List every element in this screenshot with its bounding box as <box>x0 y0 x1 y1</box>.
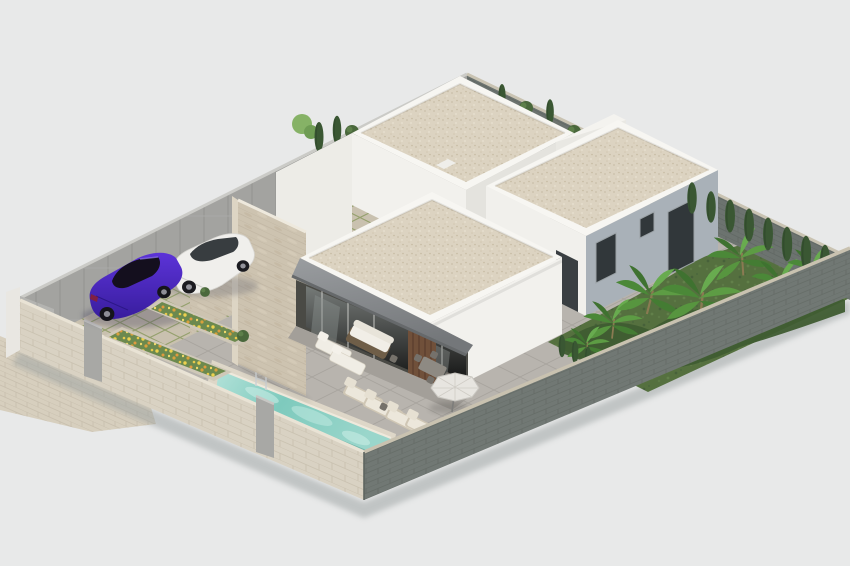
wall-pillar <box>256 396 274 458</box>
cypress-tree <box>706 191 715 223</box>
cypress-tree <box>744 209 754 242</box>
cypress-tree <box>763 218 773 251</box>
suv-rim <box>186 284 192 290</box>
garden-bush <box>200 287 210 297</box>
wall-pillar <box>84 320 102 382</box>
garden-bush <box>237 330 249 342</box>
cypress-tree <box>572 341 579 364</box>
cypress-tree <box>559 335 566 358</box>
suv-rim <box>240 264 245 269</box>
sedan-rim <box>104 311 110 317</box>
sedan-rim <box>161 289 167 294</box>
cypress-tree <box>315 122 324 152</box>
cypress-tree <box>725 200 735 233</box>
villa-render-canvas <box>0 0 850 566</box>
stone-slab-face <box>238 200 306 396</box>
render-viewport <box>0 0 850 566</box>
cypress-tree <box>782 227 792 262</box>
gate-pillar <box>6 287 20 358</box>
cypress-tree <box>687 182 696 214</box>
